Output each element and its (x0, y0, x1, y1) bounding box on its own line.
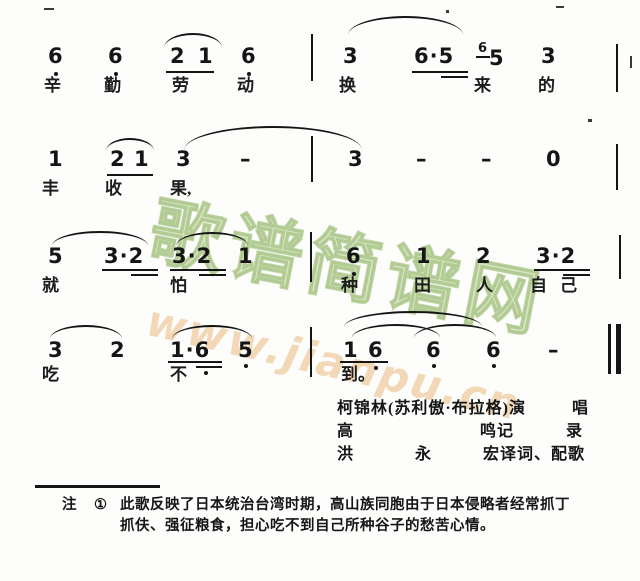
note: 1 (198, 46, 214, 67)
credit-translator: 洪 (337, 447, 354, 463)
footnote-marker: ① (94, 497, 108, 514)
note: 3 (48, 340, 64, 361)
lyric: 就 (42, 277, 59, 294)
note: 6 (368, 340, 384, 361)
beam-line (170, 269, 226, 271)
beam-line (107, 174, 153, 176)
footnote-line-1: 此歌反映了日本统治台湾时期，高山族同胞由于日本侵略者经常抓丁 (120, 497, 570, 514)
note: 2 (170, 46, 186, 67)
credit-recorder: 录 (566, 424, 583, 440)
note: 1 (238, 246, 254, 267)
lyric: 劳 (172, 77, 189, 94)
footnote-rule (35, 485, 160, 488)
lyric: 不 (170, 366, 187, 383)
note: 6 (486, 340, 502, 361)
beam-line (441, 76, 468, 78)
note: 3·2 (104, 246, 144, 267)
credit-translator: 宏译词、配歌 (483, 447, 585, 463)
note: 6 (48, 46, 64, 67)
note: 3·2 (172, 246, 212, 267)
note: 3 (541, 46, 557, 67)
ink-speck (588, 119, 592, 122)
barline (616, 44, 618, 92)
note: 2 (110, 340, 126, 361)
ink-speck (630, 56, 632, 68)
beam-line (534, 269, 590, 271)
note: 3 (343, 46, 359, 67)
slur (50, 325, 122, 339)
ink-speck (556, 6, 564, 8)
lyric: 自 (530, 277, 547, 294)
note: 3·2 (536, 246, 576, 267)
lyric: 动 (237, 77, 254, 94)
lyric: 人 (476, 277, 493, 294)
beam-line (166, 71, 214, 73)
credit-translator: 永 (415, 447, 432, 463)
note: 0 (546, 149, 562, 170)
note: – (481, 149, 493, 170)
lyric: 辛 (44, 77, 61, 94)
final-barline-thin (608, 324, 611, 374)
beam-line (340, 361, 388, 363)
lyric: 换 (339, 77, 356, 94)
footnote-label: 注 (62, 497, 77, 514)
slur (348, 16, 463, 35)
beam-line (196, 366, 222, 368)
beam-line (168, 361, 222, 363)
note: 6·5 (414, 46, 454, 67)
barline (616, 144, 618, 190)
note: 5 (48, 246, 64, 267)
lyric: 田 (414, 277, 431, 294)
barline (619, 235, 621, 279)
sheet-music-page: 歌谱简谱网 www.jianpu.cn 6 6 2 1 6 3 6·5 6 5 … (0, 0, 640, 581)
note: 5 (489, 48, 505, 69)
lyric: 来 (474, 77, 491, 94)
barline (310, 327, 312, 377)
beam-line (102, 269, 158, 271)
tie (184, 126, 362, 150)
grace-note: 6 (478, 42, 487, 55)
credit-recorder: 高 (337, 424, 354, 440)
note: 1 (416, 246, 432, 267)
lyric: 果, (170, 180, 191, 197)
grace-beam-line (476, 56, 490, 58)
note: 1 (134, 149, 150, 170)
note: 1·6 (170, 340, 210, 361)
barline (311, 136, 313, 182)
footnote-line-2: 抓伕、强征粮食，担心吃不到自己所种谷子的愁苦心情。 (120, 518, 495, 535)
octave-dot-low (432, 364, 436, 368)
lyric: 勤 (104, 77, 121, 94)
lyric: 己 (560, 277, 577, 294)
credit-performer: 柯锦林(苏利傲·布拉格)演 (337, 401, 526, 417)
note: 5 (238, 340, 254, 361)
final-barline-thick (616, 324, 621, 374)
octave-dot-low (244, 364, 248, 368)
ink-speck (446, 10, 449, 13)
ink-speck (44, 8, 54, 10)
lyric: 的 (538, 77, 555, 94)
note: 6 (241, 46, 257, 67)
barline (311, 34, 313, 81)
octave-dot-low (492, 364, 496, 368)
lyric: 怕 (170, 277, 187, 294)
note: 6 (346, 246, 362, 267)
note: 6 (108, 46, 124, 67)
note: – (416, 149, 428, 170)
note: 1 (48, 149, 64, 170)
lyric: 种 (341, 277, 358, 294)
note: 3 (348, 149, 364, 170)
octave-dot-low (204, 371, 208, 375)
note: – (548, 340, 560, 361)
note: 6 (426, 340, 442, 361)
beam-line (199, 274, 226, 276)
credit-recorder: 鸣记 (480, 424, 514, 440)
barline (310, 232, 312, 282)
lyric: 丰 (42, 180, 59, 197)
note: 2 (110, 149, 126, 170)
lyric: 到。 (341, 366, 375, 383)
beam-line (131, 274, 158, 276)
lyric: 收 (105, 180, 122, 197)
note: – (240, 149, 252, 170)
beam-line (412, 71, 468, 73)
lyric: 吃 (42, 366, 59, 383)
credit-performer-suffix: 唱 (572, 401, 589, 417)
note: 2 (476, 246, 492, 267)
note: 1 (343, 340, 359, 361)
note: 3 (176, 149, 192, 170)
